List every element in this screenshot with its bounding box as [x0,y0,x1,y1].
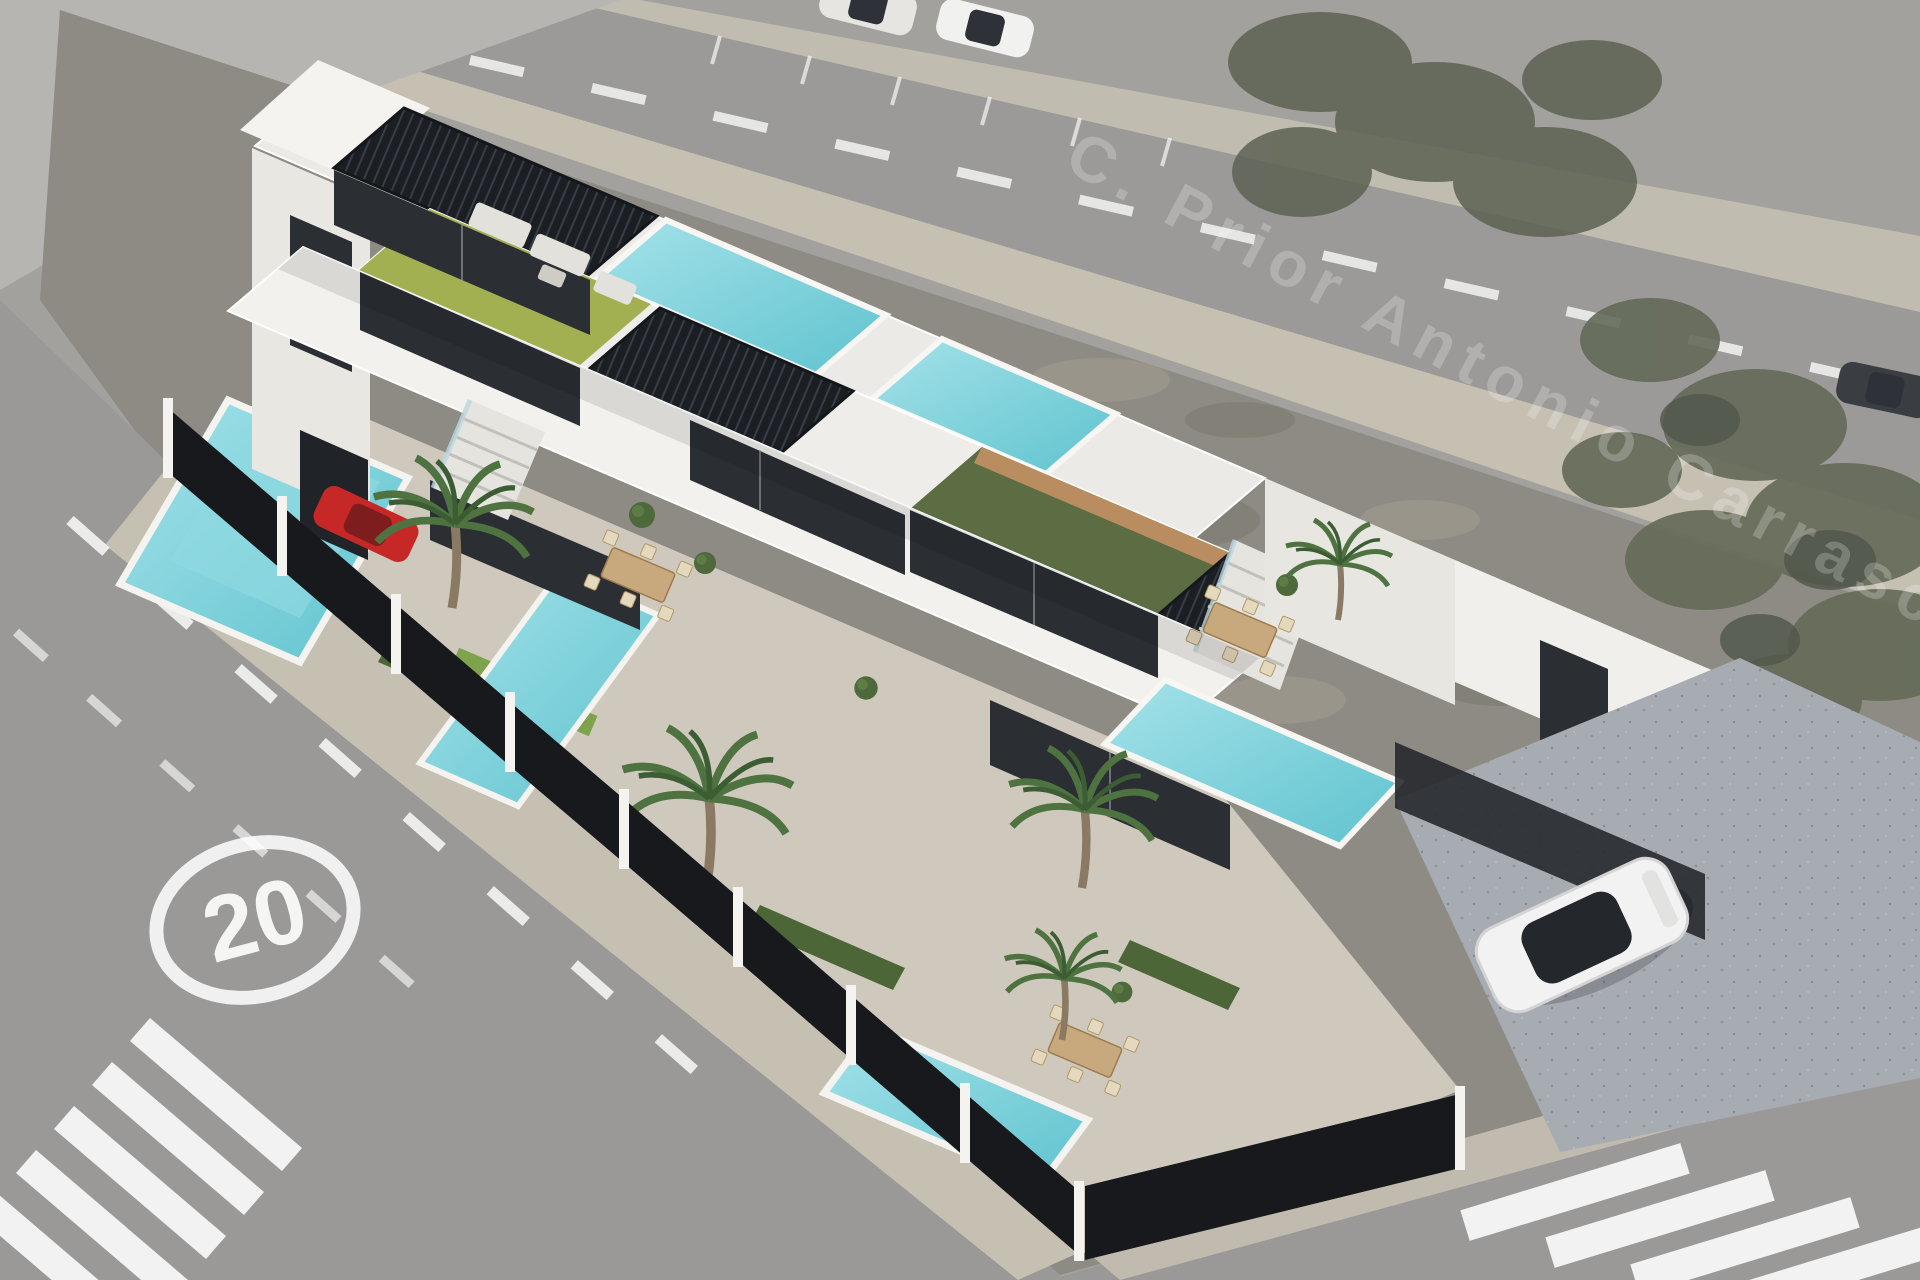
scene-canvas: 20 C. Prior Antonio Carrasco [0,0,1920,1280]
render-scene: 20 C. Prior Antonio Carrasco [0,0,1920,1280]
potted-plant-1 [629,502,655,528]
potted-plant-4 [1276,574,1298,596]
potted-plant-3 [854,676,877,699]
potted-plant-2 [694,552,716,574]
